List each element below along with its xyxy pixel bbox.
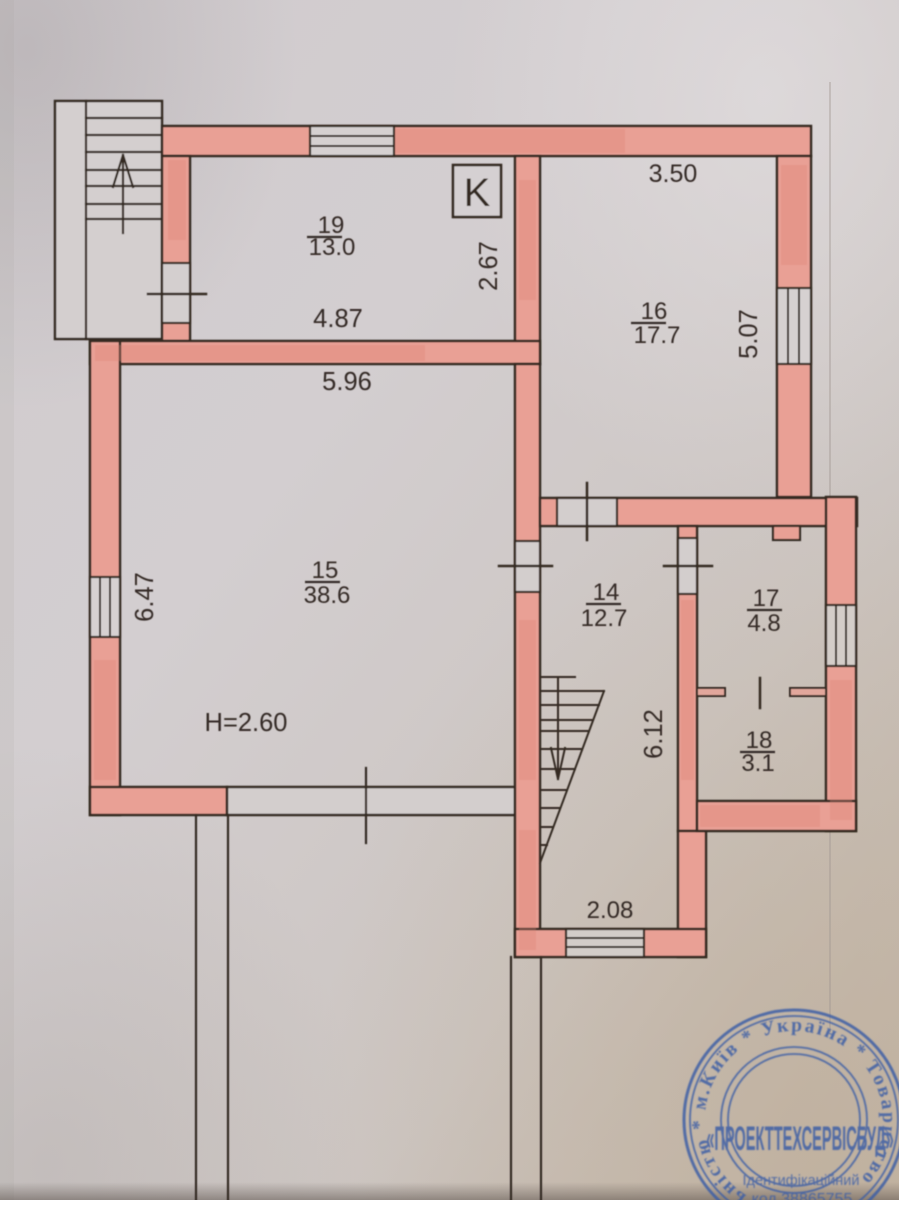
svg-text:38.6: 38.6 bbox=[304, 582, 351, 609]
svg-text:6.47: 6.47 bbox=[131, 572, 159, 622]
svg-text:12.7: 12.7 bbox=[581, 605, 628, 632]
svg-text:2.08: 2.08 bbox=[587, 897, 634, 924]
svg-text:K: K bbox=[464, 171, 491, 215]
svg-text:6.12: 6.12 bbox=[640, 709, 668, 759]
svg-text:«ПРОЕКТТЕХСЕРВІСБУД»: «ПРОЕКТТЕХСЕРВІСБУД» bbox=[706, 1119, 894, 1158]
svg-text:15: 15 bbox=[312, 557, 339, 584]
svg-text:17.7: 17.7 bbox=[634, 322, 681, 349]
svg-text:3.50: 3.50 bbox=[649, 160, 698, 188]
svg-text:4.87: 4.87 bbox=[313, 305, 363, 333]
svg-text:H=2.60: H=2.60 bbox=[205, 709, 288, 737]
svg-text:14: 14 bbox=[593, 579, 620, 606]
svg-text:4.8: 4.8 bbox=[747, 610, 780, 637]
svg-text:13.0: 13.0 bbox=[309, 234, 356, 261]
svg-text:Ідентифікаційний: Ідентифікаційний bbox=[742, 1173, 859, 1189]
svg-text:5.96: 5.96 bbox=[322, 368, 372, 396]
svg-text:5.07: 5.07 bbox=[735, 309, 763, 359]
svg-text:2.67: 2.67 bbox=[475, 241, 503, 291]
svg-text:16: 16 bbox=[641, 298, 668, 325]
svg-text:17: 17 bbox=[753, 585, 780, 612]
svg-text:3.1: 3.1 bbox=[741, 750, 774, 777]
svg-text:код 38865755: код 38865755 bbox=[752, 1191, 853, 1200]
